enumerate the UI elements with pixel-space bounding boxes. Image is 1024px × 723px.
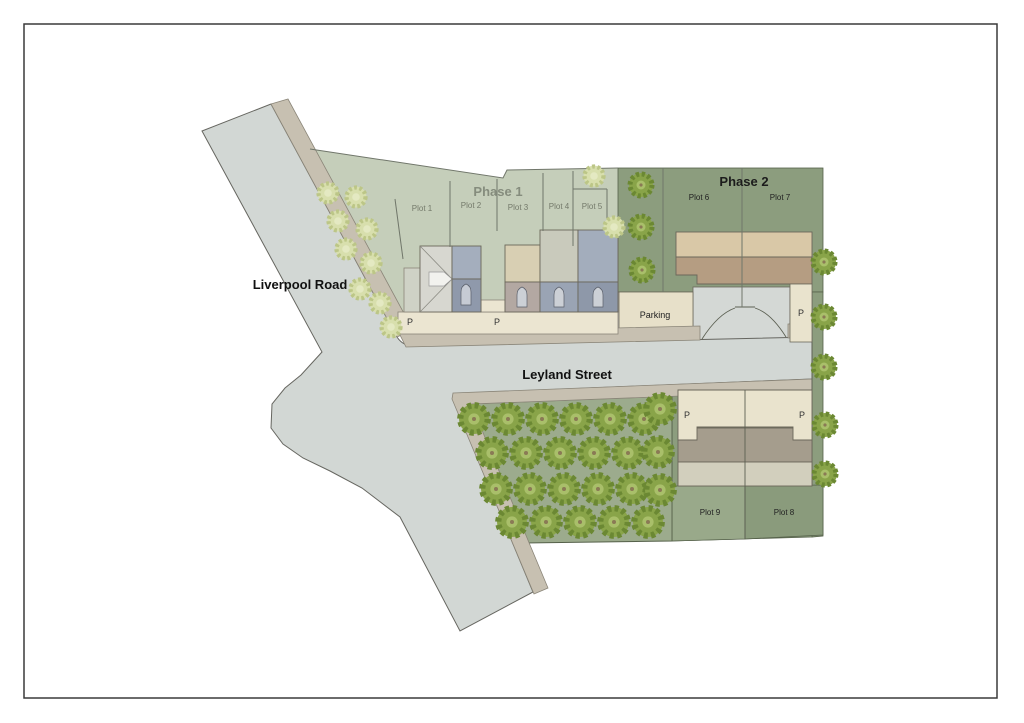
tree-icon [617,474,647,504]
phase1-title: Phase 1 [473,184,522,199]
tree-icon [813,462,837,486]
plot3-label: Plot 3 [508,203,529,212]
tree-icon [493,404,523,434]
phase1-paving-gap [481,300,505,312]
leyland-street-label: Leyland Street [522,367,612,382]
tree-icon [579,438,609,468]
tree-icon [630,258,654,282]
tree-icon [565,507,595,537]
tree-icon [629,173,653,197]
plot7-label: Plot 7 [770,193,791,202]
plot6-label: Plot 6 [689,193,710,202]
tree-icon [477,438,507,468]
plot8-label: Plot 8 [774,508,795,517]
tree-icon [583,474,613,504]
phase2-title: Phase 2 [719,174,768,189]
tree-icon [812,250,836,274]
phase1-paving-band [398,312,618,334]
parking-p-label: P [684,410,690,420]
tree-icon [328,211,349,232]
tree-icon [595,404,625,434]
tree-icon [515,474,545,504]
tree-icon [549,474,579,504]
tree-icon [561,404,591,434]
terrace-roof-2-top [540,230,578,282]
tree-icon [545,438,575,468]
plot9-label: Plot 9 [700,508,721,517]
liverpool-road-label: Liverpool Road [253,277,348,292]
tree-icon [629,215,653,239]
tree-icon [511,438,541,468]
tree-icon [481,474,511,504]
tree-icon [527,404,557,434]
plot2-label: Plot 2 [461,201,482,210]
plot5-label: Plot 5 [582,202,603,211]
parking-label: Parking [640,310,671,320]
tree-icon [531,507,561,537]
tree-icon [336,239,357,260]
tree-icon [633,507,663,537]
plot1-label: Plot 1 [412,204,433,213]
parking-p-label: P [407,317,413,327]
phase2-building-roof-upper [676,232,812,257]
tree-icon [584,166,605,187]
tree-icon [645,394,675,424]
tree-icon [370,293,391,314]
tree-icon [812,305,836,329]
tree-icon [350,279,371,300]
tree-icon [361,253,382,274]
parking-p-label: P [798,308,804,318]
phase1-paving-stub [404,268,420,312]
tree-icon [459,404,489,434]
site-plan-canvas: Liverpool Road Leyland Street Phase 1 Ph… [0,0,1024,723]
arched-window-icon [461,284,471,305]
tree-icon [613,438,643,468]
arched-window-icon [517,287,527,307]
parking-p-label: P [799,410,805,420]
arched-window-icon [593,287,603,307]
tree-icon [645,475,675,505]
tree-icon [812,355,836,379]
tree-icon [813,413,837,437]
roof-cell-blue-top [452,246,481,279]
parking-p-label: P [494,317,500,327]
plot4-label: Plot 4 [549,202,570,211]
tree-icon [357,219,378,240]
tree-icon [643,437,673,467]
tree-icon [381,317,402,338]
tree-icon [604,217,625,238]
tree-icon [599,507,629,537]
tree-icon [318,183,339,204]
terrace-roof-1-top [505,245,540,282]
tree-icon [497,507,527,537]
phase1-house-detached [420,246,481,312]
tree-icon [346,187,367,208]
site-plan-drawing: Liverpool Road Leyland Street Phase 1 Ph… [0,0,1024,723]
arched-window-icon [554,287,564,307]
